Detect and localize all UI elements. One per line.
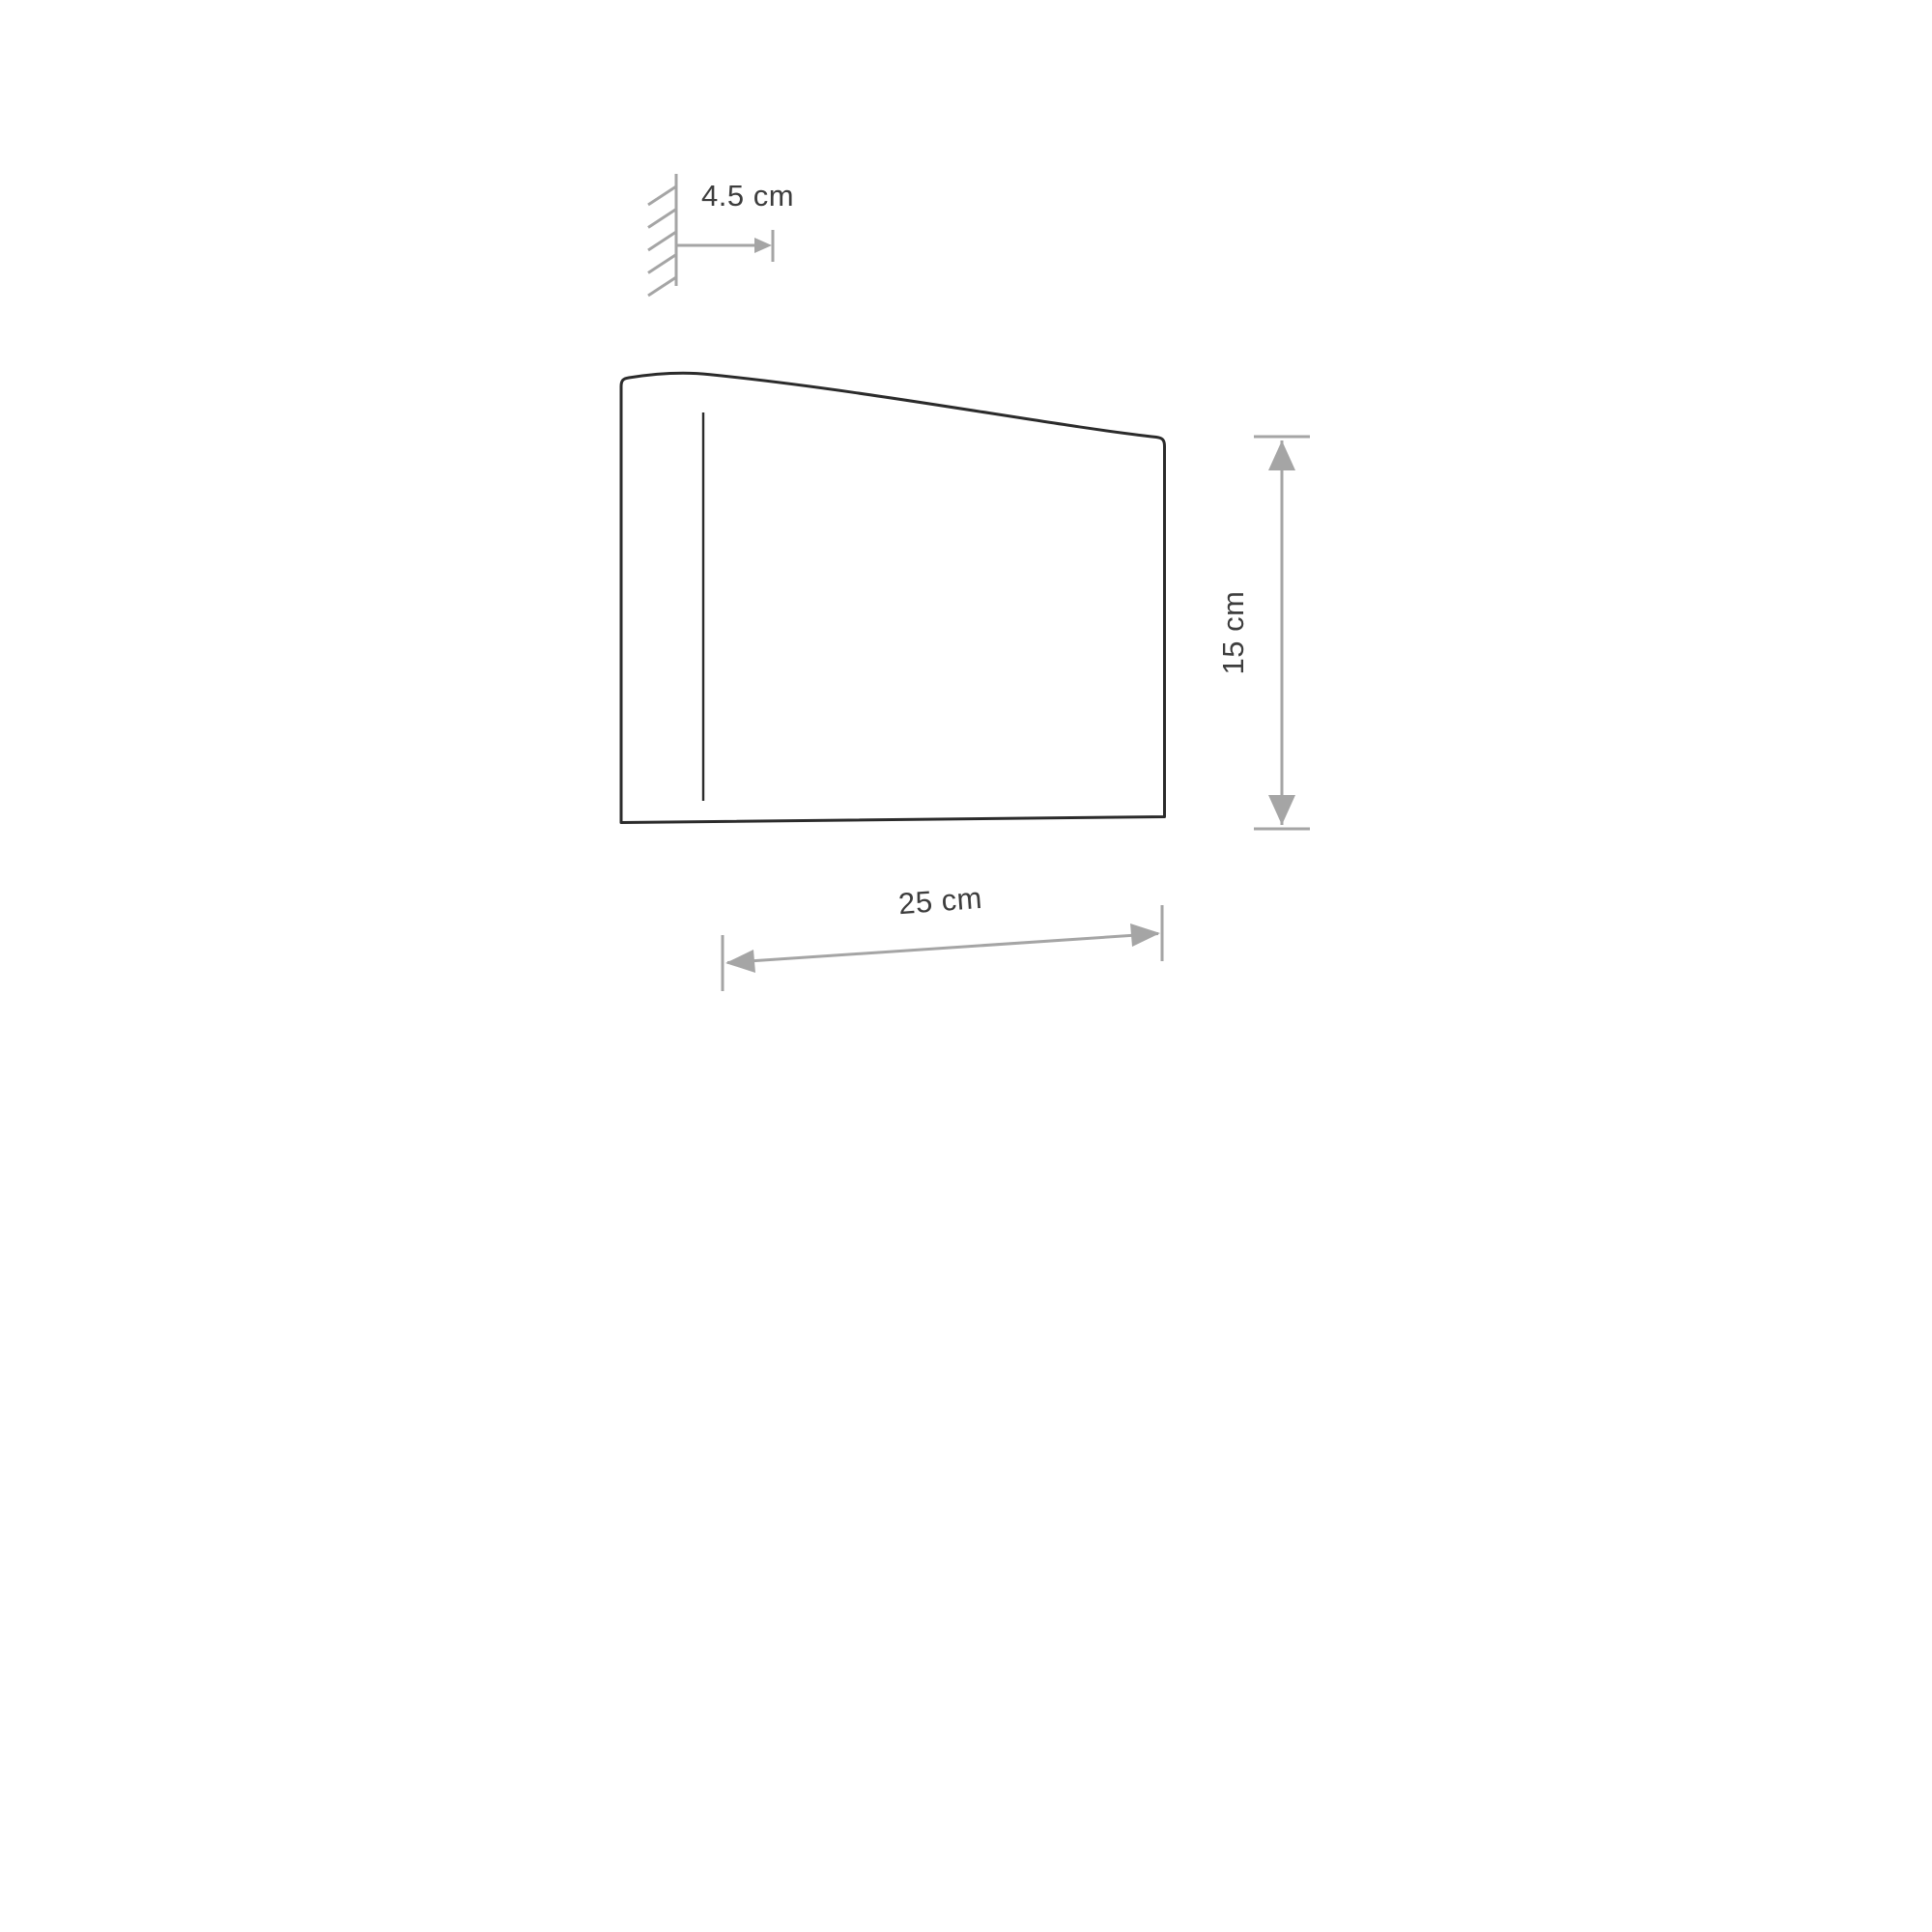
arrowhead-up-icon	[1268, 440, 1295, 470]
wall-offset-dimension-label: 4.5 cm	[701, 179, 794, 213]
dimension-drawing: 4.5 cm 25 cm 15 cm	[0, 0, 1932, 1932]
arrowhead-down-icon	[1268, 795, 1295, 825]
arrowhead-left-icon	[725, 950, 755, 973]
height-dimension-label: 15 cm	[1216, 591, 1250, 675]
wall-hatch-line	[648, 232, 676, 250]
arrowhead-right-icon	[1130, 923, 1160, 947]
width-dimension-label: 25 cm	[897, 881, 983, 921]
wall-offset-dimension: 4.5 cm	[648, 174, 794, 296]
width-dimension: 25 cm	[723, 881, 1162, 991]
lamp-profile	[621, 373, 1165, 822]
dimension-drawing-canvas: 4.5 cm 25 cm 15 cm	[0, 0, 1932, 1932]
height-dimension: 15 cm	[1216, 437, 1310, 829]
wall-hatch-line	[648, 255, 676, 273]
wall-hatch-line	[648, 277, 676, 296]
arrowhead-right-icon	[754, 238, 772, 253]
width-dimension-line	[727, 934, 1158, 963]
wall-hatch-line	[648, 186, 676, 205]
wall-hatch-line	[648, 210, 676, 228]
